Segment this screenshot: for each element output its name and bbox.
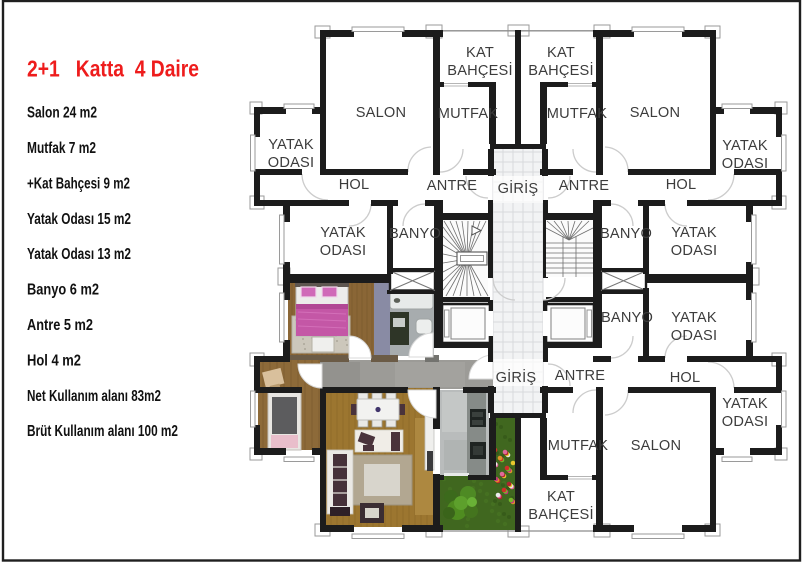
svg-text:YATAK: YATAK xyxy=(722,138,768,154)
svg-text:BANYO: BANYO xyxy=(600,226,652,242)
svg-text:BAHÇESİ: BAHÇESİ xyxy=(528,61,593,79)
svg-text:ANTRE: ANTRE xyxy=(555,368,606,384)
svg-text:Salon 24 m2: Salon 24 m2 xyxy=(27,105,97,122)
svg-text:BANYO: BANYO xyxy=(601,310,653,326)
svg-text:KAT: KAT xyxy=(547,489,575,505)
svg-text:YATAK: YATAK xyxy=(722,396,768,412)
svg-text:YATAK: YATAK xyxy=(671,225,717,241)
svg-text:SALON: SALON xyxy=(631,438,681,454)
svg-text:GİRİŞ: GİRİŞ xyxy=(498,179,539,197)
svg-text:MUTFAK: MUTFAK xyxy=(547,106,607,122)
svg-text:SALON: SALON xyxy=(356,105,406,121)
svg-text:HOL: HOL xyxy=(666,177,697,193)
svg-text:ODASI: ODASI xyxy=(722,414,768,430)
svg-text:Hol 4 m2: Hol 4 m2 xyxy=(27,352,81,369)
svg-text:Net Kullanım alanı 83m2: Net Kullanım alanı 83m2 xyxy=(27,388,161,405)
svg-text:Antre 5 m2: Antre 5 m2 xyxy=(27,317,93,334)
svg-text:Yatak Odası 13 m2: Yatak Odası 13 m2 xyxy=(27,246,131,263)
svg-text:GİRİŞ: GİRİŞ xyxy=(496,368,537,386)
svg-text:2+1 Katta 4 Daire: 2+1 Katta 4 Daire xyxy=(27,56,199,82)
svg-text:YATAK: YATAK xyxy=(268,137,314,153)
svg-text:ODASI: ODASI xyxy=(320,243,366,259)
svg-text:BAHÇESİ: BAHÇESİ xyxy=(528,505,593,523)
svg-text:KAT: KAT xyxy=(466,45,494,61)
svg-text:ODASI: ODASI xyxy=(722,156,768,172)
svg-text:YATAK: YATAK xyxy=(671,310,717,326)
svg-text:Banyo 6 m2: Banyo 6 m2 xyxy=(27,282,99,299)
svg-text:+Kat Bahçesi 9 m2: +Kat Bahçesi 9 m2 xyxy=(27,175,130,192)
svg-text:HOL: HOL xyxy=(339,177,370,193)
svg-text:BANYO: BANYO xyxy=(389,226,441,242)
svg-text:ANTRE: ANTRE xyxy=(427,178,478,194)
svg-text:SALON: SALON xyxy=(630,105,680,121)
svg-text:Mutfak 7 m2: Mutfak 7 m2 xyxy=(27,140,96,157)
svg-text:ODASI: ODASI xyxy=(671,243,717,259)
svg-text:ODASI: ODASI xyxy=(671,328,717,344)
svg-text:Yatak Odası 15 m2: Yatak Odası 15 m2 xyxy=(27,211,131,228)
svg-text:ANTRE: ANTRE xyxy=(559,178,610,194)
svg-text:MUTFAK: MUTFAK xyxy=(438,106,498,122)
svg-text:KAT: KAT xyxy=(547,45,575,61)
svg-text:HOL: HOL xyxy=(670,370,701,386)
svg-text:Brüt Kullanım alanı 100 m2: Brüt Kullanım alanı 100 m2 xyxy=(27,423,178,440)
svg-text:BAHÇESİ: BAHÇESİ xyxy=(447,61,512,79)
svg-text:YATAK: YATAK xyxy=(320,225,366,241)
svg-text:MUTFAK: MUTFAK xyxy=(548,438,608,454)
svg-text:ODASI: ODASI xyxy=(268,155,314,171)
